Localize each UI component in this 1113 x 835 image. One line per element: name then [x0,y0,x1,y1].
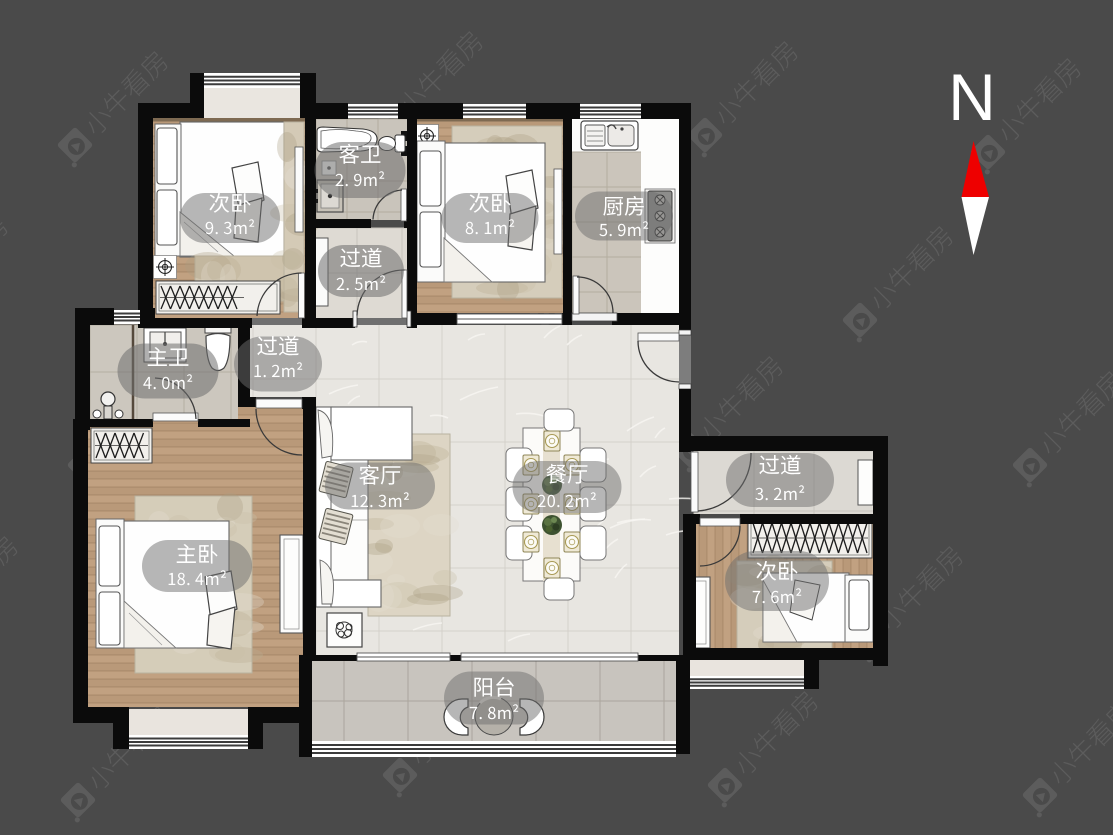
svg-text:N: N [948,60,996,134]
